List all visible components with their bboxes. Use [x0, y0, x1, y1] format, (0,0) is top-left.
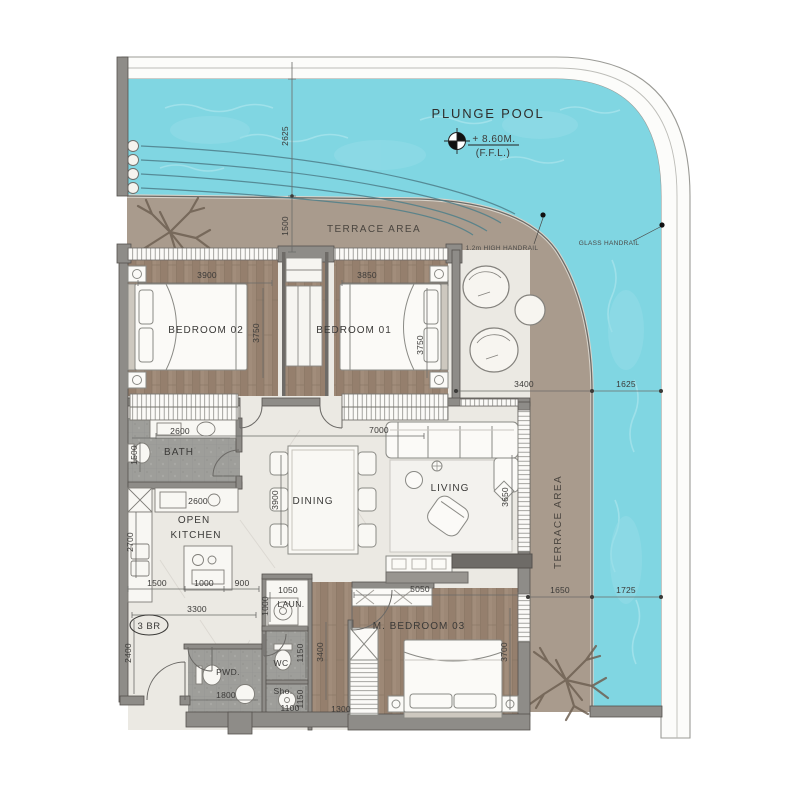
- pwd-label: PWD.: [216, 667, 240, 677]
- laundry-label: LAUN.: [277, 599, 304, 609]
- dim-dining-depth: 3900: [270, 490, 280, 510]
- dim-closet-width: 1300: [331, 704, 351, 714]
- dim-terrace-right: 1650: [550, 585, 570, 595]
- dim-entry-depth: 2400: [123, 643, 133, 663]
- pool-level: + 8.60M.: [472, 134, 515, 145]
- master-bedroom-label: M. BEDROOM 03: [373, 621, 465, 632]
- terrace-area-top-label: TERRACE AREA: [327, 224, 421, 235]
- pool-ffl: (F.F.L.): [476, 148, 511, 159]
- kitchen-label-1: OPEN: [178, 515, 210, 526]
- dim-b01-width: 3850: [357, 270, 377, 280]
- dim-shower-width: 1100: [280, 703, 299, 713]
- unit-badge: 3 BR: [137, 621, 160, 632]
- dim-living-depth: 3650: [500, 487, 510, 507]
- shower-label: Sho.: [273, 686, 292, 696]
- dim-bath-depth: 1500: [129, 445, 139, 465]
- dim-bath-width: 2600: [170, 426, 190, 436]
- dim-terrace-top: 1500: [280, 216, 290, 236]
- dim-pool-top: 2625: [280, 126, 290, 146]
- dim-lounge-width: 3400: [514, 379, 534, 389]
- glass-handrail-dot: [659, 222, 664, 227]
- dim-dining-width: 7000: [369, 425, 389, 435]
- dim-k3: 900: [235, 578, 250, 588]
- dim-b01-depth: 3750: [415, 335, 425, 355]
- handrail-note: 1.2m HIGH HANDRAIL: [466, 245, 539, 252]
- floor-plan: PLUNGE POOL + 8.60M. (F.F.L.) TERRACE AR…: [0, 0, 800, 800]
- glass-handrail-note: GLASS HANDRAIL: [579, 240, 640, 247]
- dim-kitchen-depth: 2700: [125, 532, 135, 552]
- kitchen-label-2: KITCHEN: [171, 530, 222, 541]
- dim-entry-width: 3300: [187, 604, 207, 614]
- sliding-door-panel-2: [386, 572, 468, 583]
- pool-title: PLUNGE POOL: [432, 106, 545, 121]
- dim-wc-depth: 1150: [295, 643, 305, 662]
- sliding-door-panel: [452, 554, 532, 568]
- dim-laundry-width: 1050: [278, 585, 298, 595]
- living-label: LIVING: [431, 483, 470, 494]
- dim-b02-width: 3900: [197, 270, 217, 280]
- dim-master-depth: 3700: [499, 642, 509, 662]
- bath-label: BATH: [164, 447, 194, 458]
- dim-k1: 1500: [147, 578, 167, 588]
- dim-pool-right-top: 1625: [616, 379, 636, 389]
- dim-k2: 1000: [194, 578, 214, 588]
- dim-master-width: 5050: [410, 584, 430, 594]
- bedroom-02-label: BEDROOM 02: [168, 325, 244, 336]
- handrail-dot: [540, 212, 545, 217]
- terrace-area-right-label: TERRACE AREA: [553, 475, 564, 569]
- dim-counter: 2600: [188, 496, 208, 506]
- floor-plan-page: PLUNGE POOL + 8.60M. (F.F.L.) TERRACE AR…: [0, 0, 800, 800]
- dim-laundry-depth: 1000: [260, 596, 270, 616]
- bedroom-01-label: BEDROOM 01: [316, 325, 392, 336]
- dining-label: DINING: [293, 496, 334, 507]
- wc-label: WC: [274, 658, 289, 668]
- closet-column: [286, 258, 322, 366]
- dim-pool-right-bottom: 1725: [616, 585, 636, 595]
- dim-b02-depth: 3750: [251, 323, 261, 343]
- dim-pwd-width: 1800: [216, 690, 236, 700]
- dim-hall-depth: 3400: [315, 642, 325, 662]
